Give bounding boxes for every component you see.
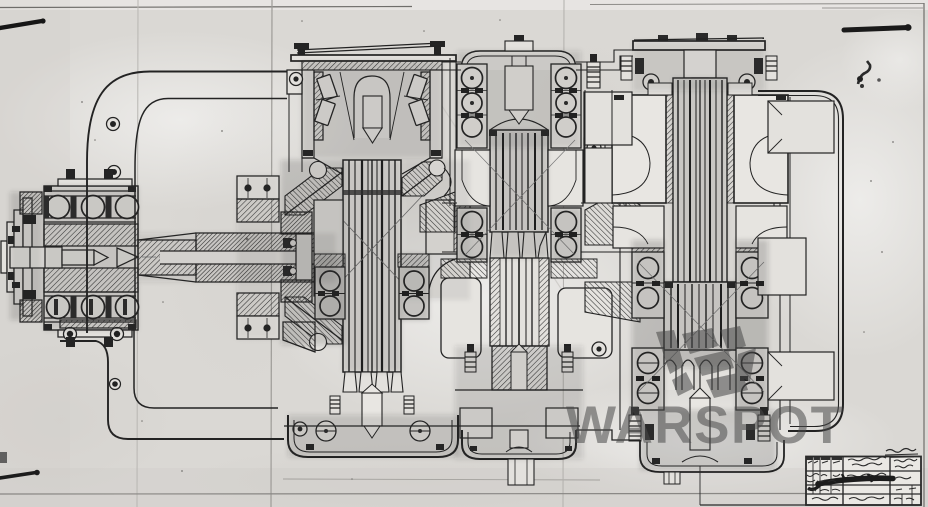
svg-text:WARSPOT: WARSPOT xyxy=(566,396,844,455)
